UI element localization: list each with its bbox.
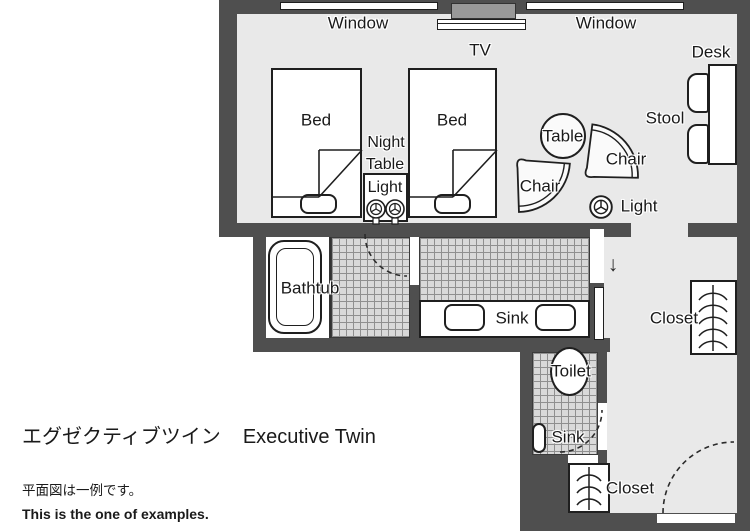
night-table-light-label-1: Night [367,135,404,151]
night-table-light-label-2: Table [366,157,404,173]
wall-bedroom-bottom-stub [688,223,737,237]
closet-bottom [568,463,610,513]
stool-bottom [687,124,709,164]
window-left [280,2,438,10]
night-table-light-label-3: Light [368,180,403,196]
window-right [526,2,684,10]
room-title-ja: エグゼクティブツイン [22,426,221,448]
note-japanese: 平面図は一例です。 [22,479,142,499]
pillow-right [434,194,471,214]
toilet-door-opening [598,403,607,450]
room-title-en: Executive Twin [243,426,376,448]
wall-right [737,0,750,531]
bathroom-door-opening [410,237,419,285]
tv-label: TV [469,42,491,59]
page-title: エグゼクティブツインExecutive Twin [22,420,376,449]
toilet-sink-label: Sink [551,429,584,446]
floor-plan: Window Window TV Desk Stool Bed Bed Nigh… [0,0,750,531]
window-right-label: Window [576,15,636,32]
pillow-left [300,194,337,214]
wall-toilet-left [520,338,532,531]
bed-right-label: Bed [437,112,467,129]
sink-label: Sink [495,310,528,327]
entrance-door-opening [657,514,735,523]
wall-left [219,0,237,237]
corridor-floor [604,237,737,513]
bed-left-label: Bed [301,112,331,129]
entry-arrow-icon: ↓ [608,253,619,277]
bathroom-tile-floor [331,237,410,338]
closet-bottom-label: Closet [606,480,654,497]
window-left-label: Window [328,15,388,32]
sink-basin-right [535,304,576,331]
stool-top [687,73,709,113]
chair-left-label: Chair [520,178,561,195]
table-label: Table [543,128,584,145]
wall-bedroom-bottom [219,223,631,237]
tv-cabinet [451,3,516,19]
desk-label: Desk [692,44,731,61]
washroom-door-opening [590,229,604,283]
chair-right-label: Chair [606,151,647,168]
washroom-tile-floor [419,237,590,302]
desk [708,64,737,165]
note-english: This is the one of examples. [22,506,209,522]
passage-floor [631,223,688,237]
closet-right-label: Closet [650,310,698,327]
wall-below-toilet [532,455,568,515]
tv-screen [437,19,526,30]
sink-basin-left [444,304,485,331]
wall-bathroom-left [253,237,266,352]
wall-bathroom-bottom [253,338,610,352]
bathtub-label: Bathtub [281,280,340,297]
stool-label: Stool [646,110,685,127]
washroom-door-leaf [594,287,604,340]
toilet-label: Toilet [551,363,591,380]
light-label: Light [621,198,658,215]
toilet-room-sink [532,423,546,453]
